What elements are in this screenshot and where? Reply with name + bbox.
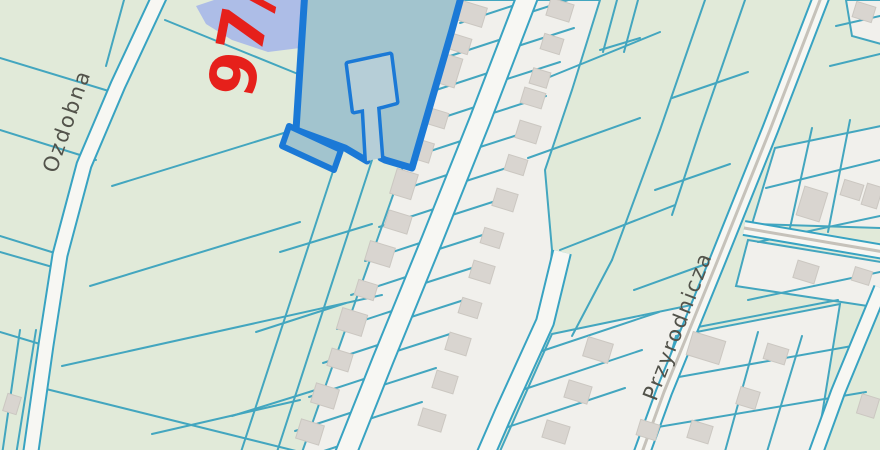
map-canvas[interactable]: Ozdobna Przyrodnicza 97/ xyxy=(0,0,880,450)
map-viewport[interactable]: Ozdobna Przyrodnicza 97/ xyxy=(0,0,880,450)
